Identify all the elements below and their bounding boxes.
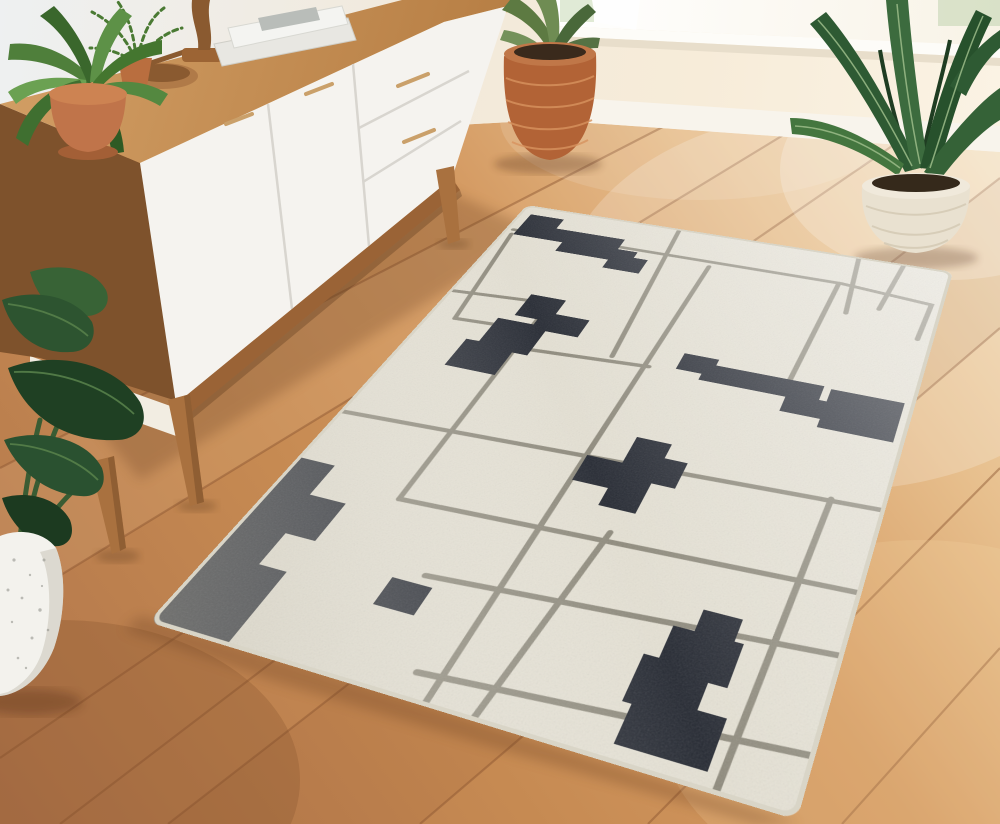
philodendron-plant xyxy=(0,267,144,715)
scene-foreground xyxy=(0,0,1000,824)
room-scene xyxy=(0,0,1000,824)
